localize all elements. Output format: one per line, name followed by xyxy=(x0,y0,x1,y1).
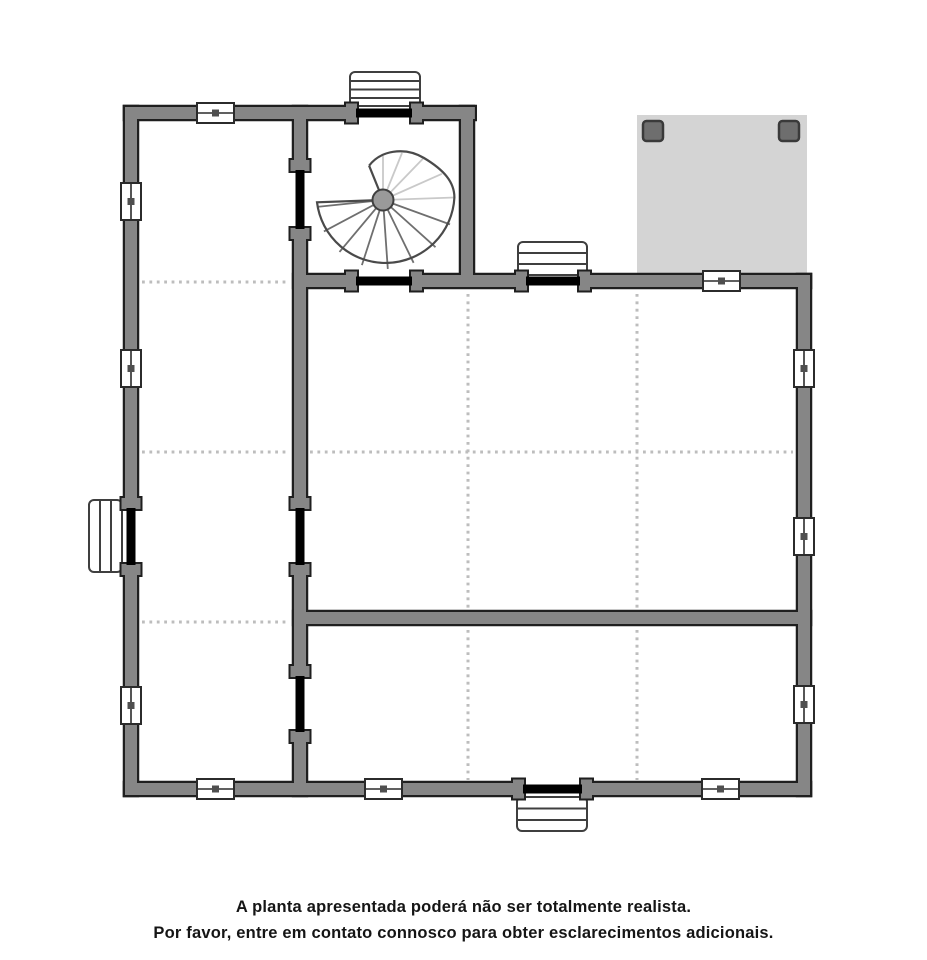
steps-bottom-icon xyxy=(517,797,587,831)
spiral-staircase-icon xyxy=(317,151,454,269)
window-icon xyxy=(794,518,814,555)
disclaimer-line-2: Por favor, entre em contato connosco par… xyxy=(0,920,927,946)
staircase-newel-post xyxy=(373,190,394,211)
steps-left-icon xyxy=(89,500,122,572)
window-icon xyxy=(365,779,402,799)
window-icon xyxy=(121,183,141,220)
window-icon xyxy=(703,271,740,291)
floor-plan-drawing xyxy=(0,0,927,880)
terrace-pillar-left xyxy=(643,121,663,141)
floor-plan-page: A planta apresentada poderá não ser tota… xyxy=(0,0,927,960)
window-icon xyxy=(794,686,814,723)
disclaimer-caption: A planta apresentada poderá não ser tota… xyxy=(0,894,927,946)
dotted-guide-lines xyxy=(142,282,793,780)
window-icon xyxy=(702,779,739,799)
window-icon xyxy=(197,779,234,799)
window-icon xyxy=(197,103,234,123)
window-icon xyxy=(121,350,141,387)
steps-top-icon xyxy=(350,72,420,106)
disclaimer-line-1: A planta apresentada poderá não ser tota… xyxy=(0,894,927,920)
terrace xyxy=(637,115,807,281)
window-icon xyxy=(121,687,141,724)
terrace-pillar-right xyxy=(779,121,799,141)
window-icon xyxy=(794,350,814,387)
